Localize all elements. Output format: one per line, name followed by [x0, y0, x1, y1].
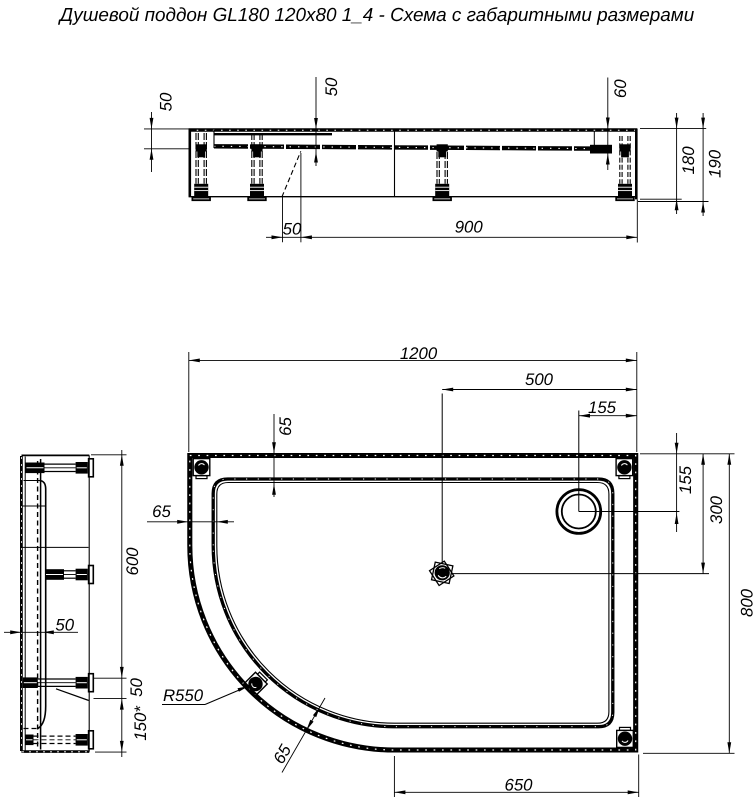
- svg-text:190: 190: [706, 149, 725, 178]
- svg-text:155: 155: [676, 465, 695, 494]
- svg-text:50: 50: [55, 616, 74, 635]
- svg-text:50: 50: [127, 678, 146, 697]
- svg-text:900: 900: [455, 218, 484, 237]
- svg-text:50: 50: [322, 77, 341, 96]
- svg-text:50: 50: [283, 220, 302, 239]
- svg-text:800: 800: [738, 588, 754, 617]
- svg-text:50: 50: [157, 92, 176, 111]
- svg-text:155: 155: [588, 398, 617, 417]
- svg-text:650: 650: [505, 776, 534, 795]
- svg-text:R550: R550: [163, 686, 204, 705]
- svg-text:Душевой поддон GL180 120x80 1_: Душевой поддон GL180 120x80 1_4 - Схема …: [58, 5, 695, 26]
- svg-text:65: 65: [269, 741, 295, 767]
- svg-text:65: 65: [152, 502, 171, 521]
- svg-text:500: 500: [525, 370, 554, 389]
- svg-text:60: 60: [611, 79, 630, 98]
- svg-text:1200: 1200: [400, 344, 438, 363]
- svg-text:300: 300: [707, 495, 726, 524]
- svg-text:180: 180: [679, 146, 698, 175]
- svg-text:65: 65: [276, 417, 295, 436]
- svg-text:150*: 150*: [131, 706, 150, 741]
- svg-text:600: 600: [123, 547, 142, 576]
